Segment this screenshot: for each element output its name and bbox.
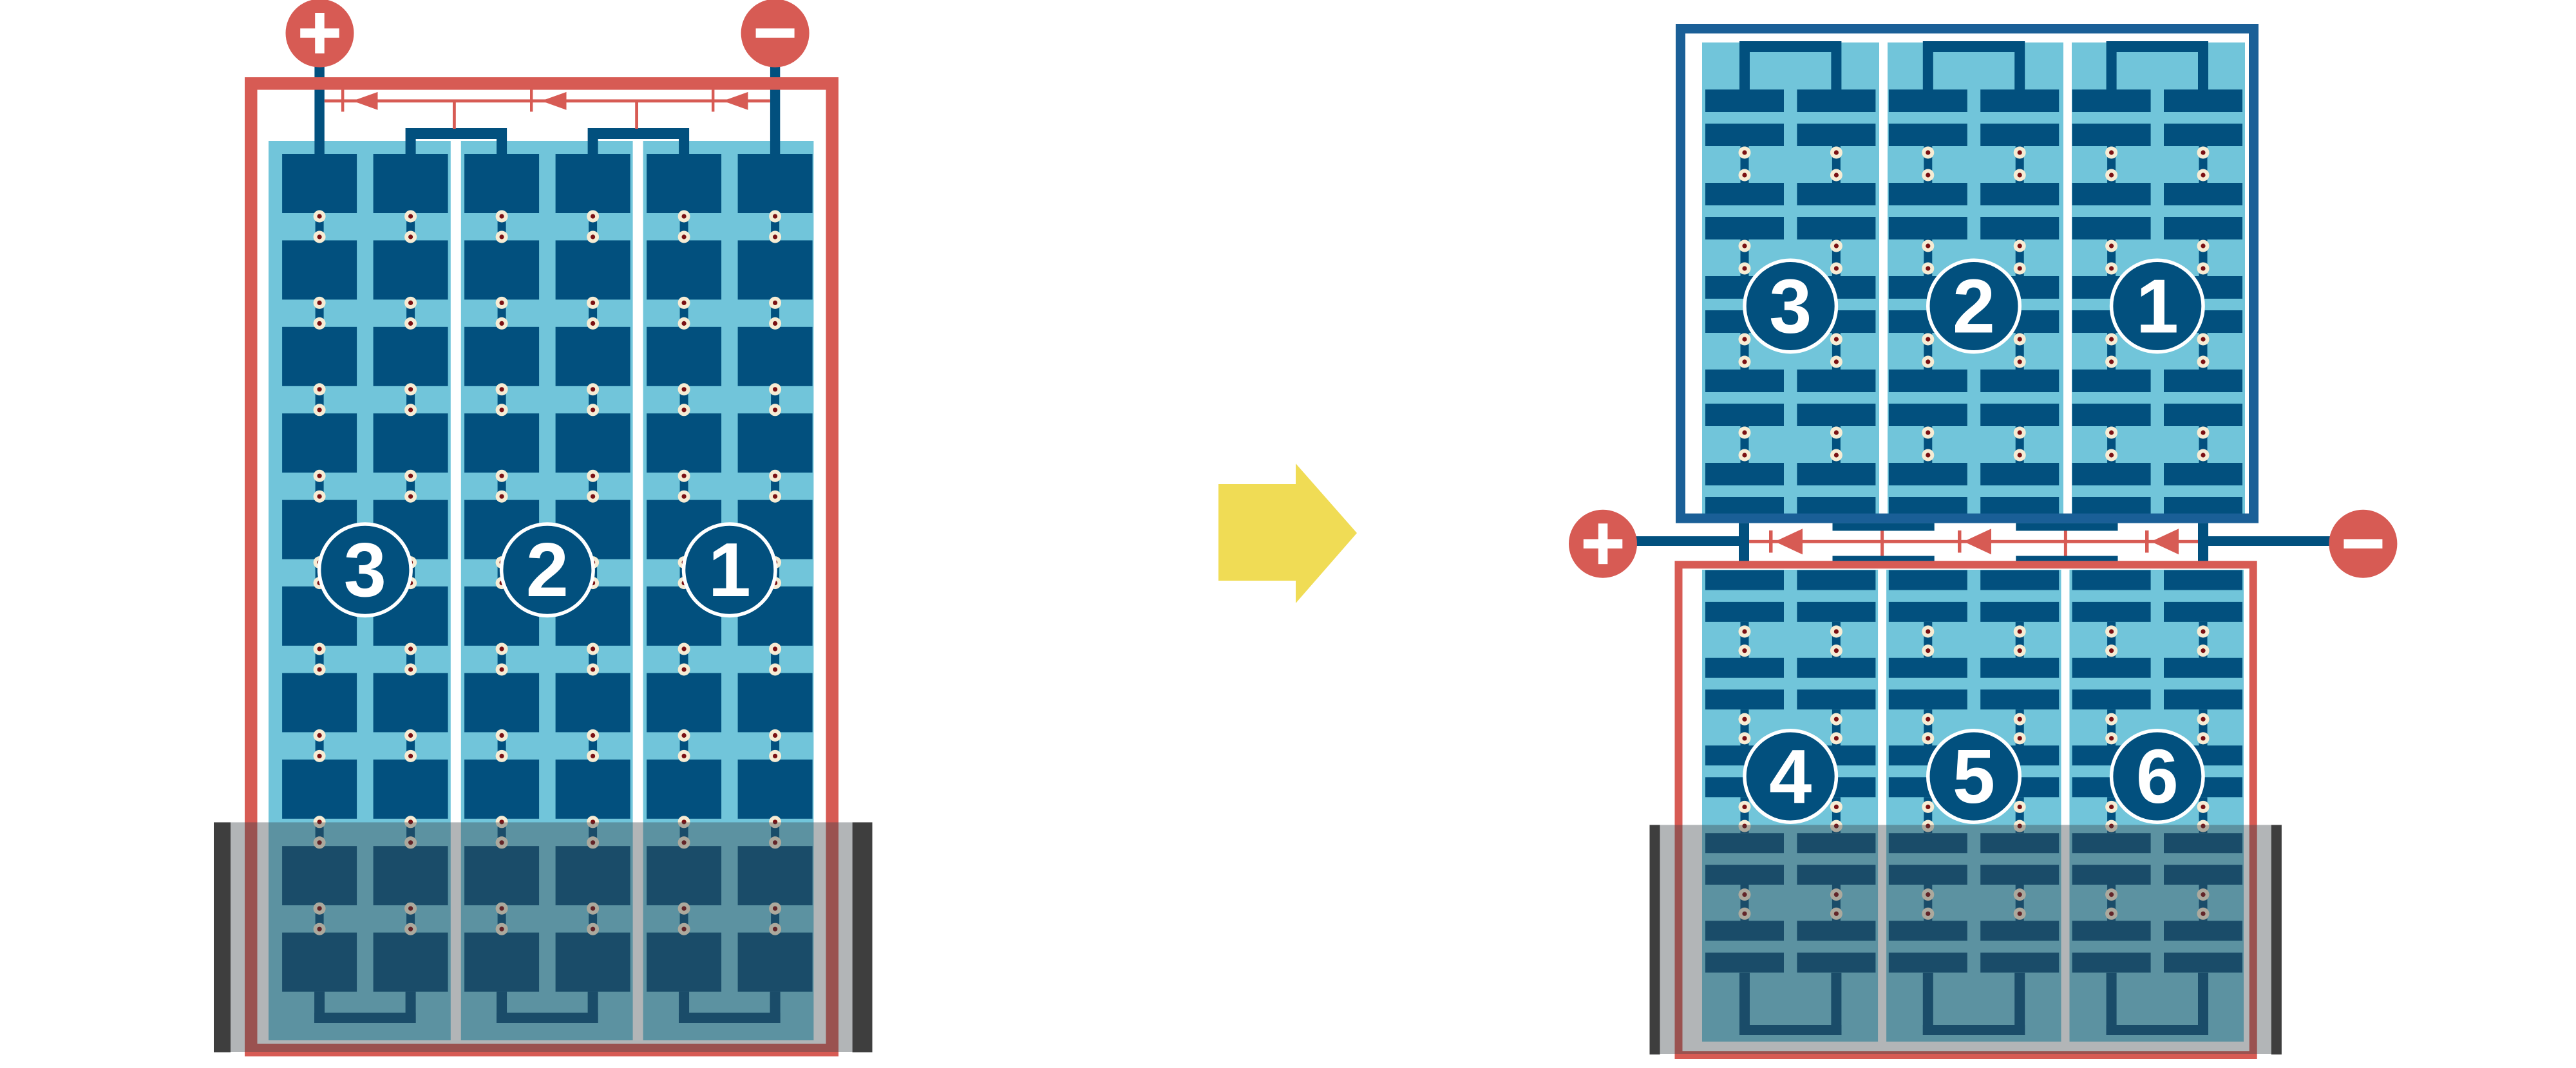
- svg-text:5: 5: [1953, 734, 1995, 820]
- svg-text:2: 2: [526, 527, 569, 613]
- svg-text:3: 3: [1769, 264, 1812, 350]
- svg-text:1: 1: [2136, 264, 2179, 350]
- svg-text:1: 1: [708, 527, 751, 613]
- svg-text:6: 6: [2136, 734, 2179, 820]
- svg-text:2: 2: [1953, 264, 1995, 350]
- svg-text:4: 4: [1769, 734, 1812, 820]
- svg-text:3: 3: [344, 527, 386, 613]
